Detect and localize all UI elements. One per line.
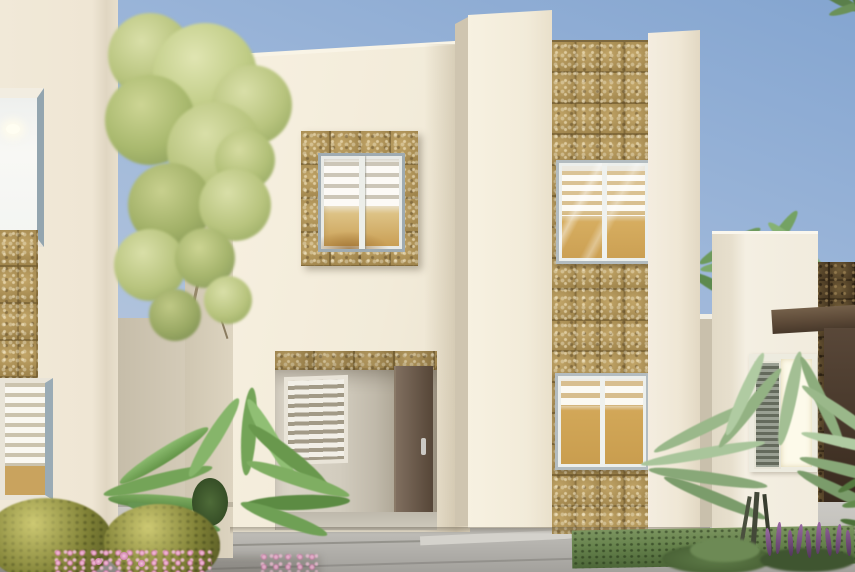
pink-flower — [120, 552, 128, 560]
window-mullion — [602, 163, 607, 261]
tower-window-lower — [555, 373, 649, 470]
pink-flower — [95, 558, 102, 565]
upper-bedroom-window — [318, 153, 405, 252]
pink-flowers — [52, 548, 212, 572]
tower-window-upper — [556, 160, 651, 264]
left-neighbor-lower-window — [0, 378, 53, 500]
left-neighbor-stone-panel — [0, 230, 38, 378]
tree-foliage — [204, 276, 252, 324]
tower-pilaster-left — [468, 10, 552, 528]
ground-shrub — [690, 538, 760, 562]
left-neighbor-upper-window — [0, 88, 44, 247]
tree-foliage — [149, 289, 201, 341]
tower-pilaster-left-side — [455, 16, 470, 526]
exterior-render-scene — [0, 0, 855, 572]
window-blinds — [5, 383, 45, 466]
door-handle — [421, 438, 426, 455]
pink-flowers — [258, 552, 318, 572]
entry-door — [394, 366, 433, 522]
window-mullion — [359, 156, 365, 249]
window-mullion — [600, 376, 605, 467]
pink-flower — [138, 560, 145, 567]
ceiling-lamp-icon — [6, 124, 20, 134]
